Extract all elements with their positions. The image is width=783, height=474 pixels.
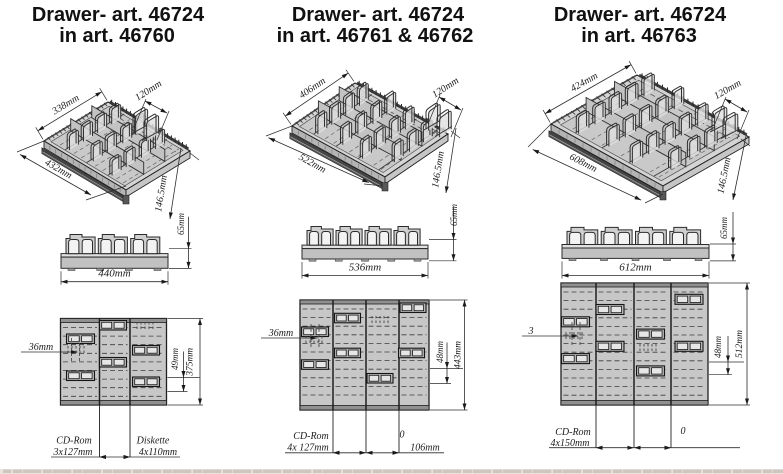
svg-text:in art. 46761 & 46762: in art. 46761 & 46762 (277, 25, 474, 47)
svg-text:375mm: 375mm (186, 348, 196, 377)
svg-text:65mm: 65mm (719, 217, 729, 239)
svg-text:in art. 46763: in art. 46763 (581, 25, 697, 47)
svg-text:0: 0 (400, 430, 405, 441)
svg-text:Diskette: Diskette (136, 436, 170, 447)
svg-text:36mm: 36mm (268, 328, 293, 339)
svg-text:443mm: 443mm (454, 341, 464, 369)
svg-text:512mm: 512mm (735, 330, 745, 358)
svg-text:3: 3 (528, 326, 534, 337)
svg-text:65mm: 65mm (449, 204, 459, 226)
svg-text:48mm: 48mm (435, 341, 445, 363)
svg-text:65mm: 65mm (176, 213, 186, 235)
svg-text:440mm: 440mm (98, 268, 130, 280)
svg-text:612mm: 612mm (619, 262, 651, 274)
svg-text:4x110mm: 4x110mm (139, 447, 177, 458)
svg-text:CD-Rom: CD-Rom (56, 436, 92, 447)
svg-text:49mm: 49mm (170, 348, 180, 370)
svg-text:Drawer- art. 46724: Drawer- art. 46724 (32, 4, 205, 26)
svg-text:CD-Rom: CD-Rom (555, 427, 591, 438)
svg-text:106mm: 106mm (410, 443, 439, 454)
svg-text:36mm: 36mm (28, 342, 53, 353)
svg-text:Drawer- art. 46724: Drawer- art. 46724 (292, 4, 465, 26)
svg-text:in art. 46760: in art. 46760 (59, 25, 175, 47)
svg-text:536mm: 536mm (349, 262, 381, 274)
svg-text:4x 127mm: 4x 127mm (287, 443, 328, 454)
svg-text:CD-Rom: CD-Rom (293, 431, 329, 442)
svg-text:4x150mm: 4x150mm (551, 438, 590, 449)
svg-text:3x127mm: 3x127mm (53, 447, 93, 458)
svg-text:48mm: 48mm (713, 336, 723, 358)
svg-text:Drawer- art. 46724: Drawer- art. 46724 (554, 4, 727, 26)
svg-text:0: 0 (681, 426, 686, 437)
